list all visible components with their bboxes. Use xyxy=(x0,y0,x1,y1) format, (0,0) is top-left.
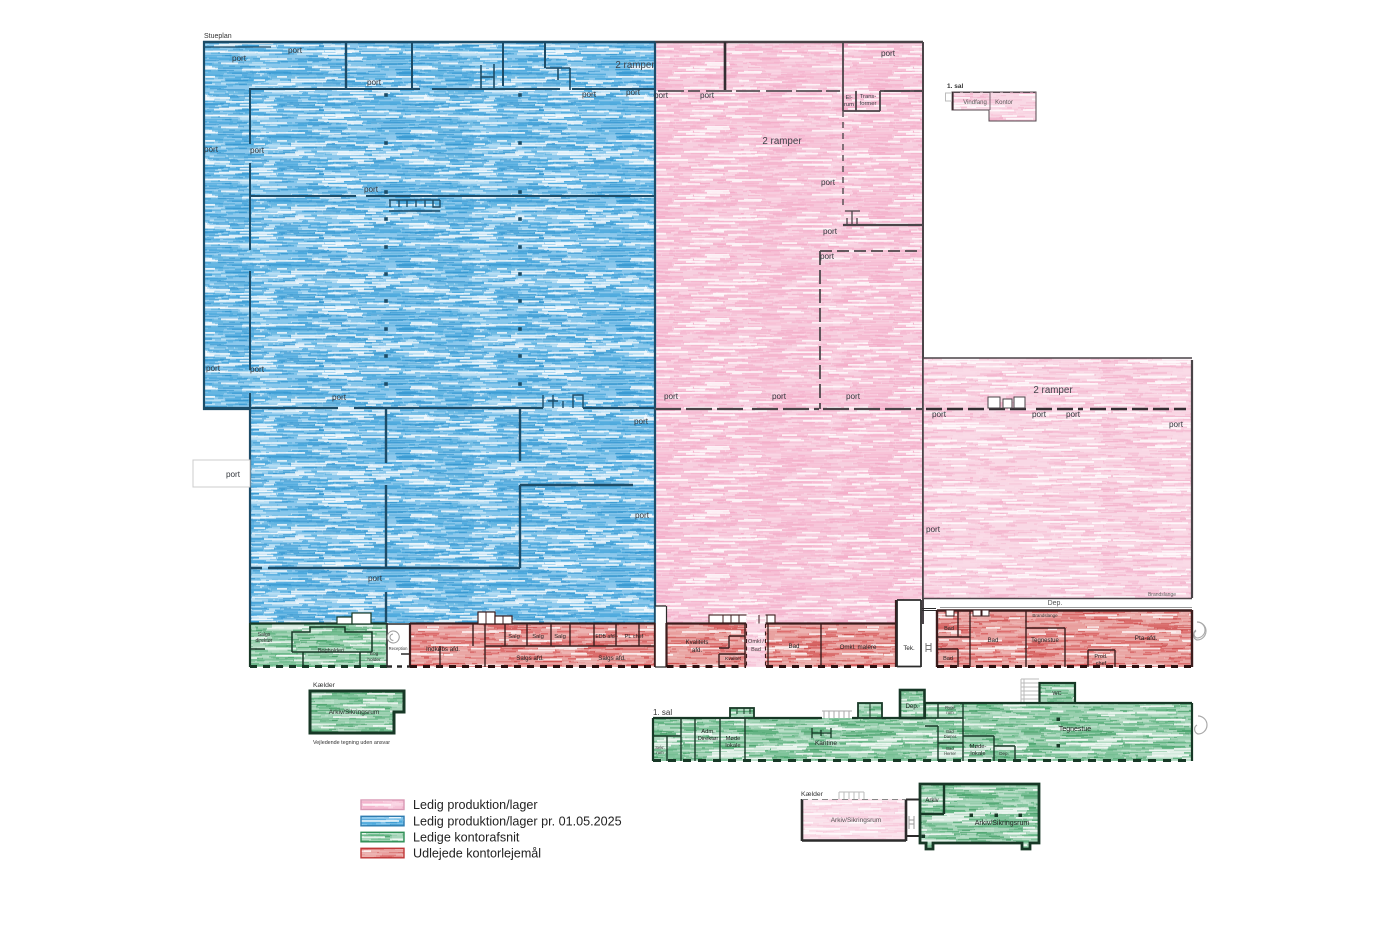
svg-text:Ledige kontorafsnit: Ledige kontorafsnit xyxy=(413,830,520,844)
svg-text:direktør: direktør xyxy=(256,638,273,644)
svg-text:port: port xyxy=(772,392,787,401)
svg-text:WC: WC xyxy=(1052,691,1061,697)
svg-text:rum: rum xyxy=(844,102,854,108)
svg-text:holder: holder xyxy=(367,657,381,663)
svg-text:Omkl. malere: Omkl. malere xyxy=(840,644,877,651)
svg-text:port: port xyxy=(332,393,347,402)
svg-text:Adm.: Adm. xyxy=(701,729,715,735)
svg-text:port: port xyxy=(250,146,265,155)
svg-text:Kantine: Kantine xyxy=(815,740,837,747)
svg-text:Bog: Bog xyxy=(370,651,379,657)
svg-text:Bad: Bad xyxy=(943,656,953,662)
svg-text:Salg: Salg xyxy=(554,634,566,640)
svg-text:Dep.: Dep. xyxy=(999,751,1009,756)
svg-text:port: port xyxy=(368,574,383,583)
svg-text:Arkiv/Sikringsrum: Arkiv/Sikringsrum xyxy=(975,820,1030,827)
svg-text:Direktør: Direktør xyxy=(698,736,719,742)
svg-text:port: port xyxy=(204,145,219,154)
svg-text:Brandslange: Brandslange xyxy=(1148,592,1176,598)
svg-text:lokale: lokale xyxy=(970,751,985,757)
svg-text:Arkiv/Sikringsrum: Arkiv/Sikringsrum xyxy=(329,709,380,716)
svg-text:2 ramper: 2 ramper xyxy=(762,136,802,147)
svg-text:Dep.: Dep. xyxy=(905,703,918,710)
svg-text:port: port xyxy=(364,185,379,194)
svg-text:rum: rum xyxy=(946,710,954,715)
svg-text:lokale: lokale xyxy=(725,743,740,749)
svg-text:Ledig produktion/lager pr. 01.: Ledig produktion/lager pr. 01.05.2025 xyxy=(413,814,622,828)
svg-text:Salg: Salg xyxy=(532,634,544,640)
svg-text:Herrer: Herrer xyxy=(944,751,956,756)
svg-text:Kælder: Kælder xyxy=(313,682,336,689)
svg-text:port: port xyxy=(820,252,835,261)
svg-text:Kontor: Kontor xyxy=(995,100,1013,106)
svg-text:port: port xyxy=(206,364,221,373)
svg-text:Damer: Damer xyxy=(944,734,957,739)
svg-text:Omkl /: Omkl / xyxy=(748,639,764,645)
svg-text:Møde-: Møde- xyxy=(970,744,987,750)
svg-text:port: port xyxy=(226,470,241,479)
svg-text:Tek.: Tek. xyxy=(903,645,915,652)
svg-text:El-: El- xyxy=(845,95,852,101)
svg-text:Bad: Bad xyxy=(751,647,761,653)
svg-text:Kvalitets: Kvalitets xyxy=(686,640,709,646)
svg-text:port: port xyxy=(582,90,597,99)
svg-text:Stueplan: Stueplan xyxy=(204,33,232,40)
svg-text:port: port xyxy=(288,46,303,55)
svg-text:Kvalitet: Kvalitet xyxy=(725,656,741,662)
svg-text:port: port xyxy=(250,365,265,374)
svg-text:port: port xyxy=(654,91,669,100)
svg-text:2 ramper: 2 ramper xyxy=(615,60,655,71)
svg-text:Arkiv/Sikringsrum: Arkiv/Sikringsrum xyxy=(831,817,882,824)
svg-text:Arkiv: Arkiv xyxy=(925,798,938,804)
svg-text:PL chef: PL chef xyxy=(625,634,644,640)
svg-text:Ledig produktion/lager: Ledig produktion/lager xyxy=(413,798,538,812)
svg-text:port: port xyxy=(634,417,649,426)
svg-text:Tegnestue: Tegnestue xyxy=(1031,638,1059,644)
svg-text:port: port xyxy=(926,525,941,534)
svg-text:Brandslange: Brandslange xyxy=(1032,613,1058,618)
svg-text:Tegnestue: Tegnestue xyxy=(1059,726,1091,733)
svg-text:1. sal: 1. sal xyxy=(947,83,963,90)
svg-text:port: port xyxy=(626,88,641,97)
svg-text:Vindfang: Vindfang xyxy=(963,100,987,106)
svg-text:port: port xyxy=(821,178,836,187)
svg-text:Vejledende tegning uden ansvar: Vejledende tegning uden ansvar xyxy=(313,740,390,746)
svg-text:rum: rum xyxy=(656,750,664,755)
svg-text:Bad: Bad xyxy=(944,626,954,632)
svg-text:Kælder: Kælder xyxy=(801,791,824,798)
svg-text:port: port xyxy=(664,392,679,401)
svg-text:port: port xyxy=(932,410,947,419)
svg-text:former: former xyxy=(860,101,877,107)
svg-text:1. sal: 1. sal xyxy=(653,708,672,717)
svg-text:Salg: Salg xyxy=(508,634,520,640)
svg-text:chef: chef xyxy=(1096,661,1107,667)
svg-text:port: port xyxy=(232,54,247,63)
svg-text:port: port xyxy=(635,511,650,520)
svg-text:port: port xyxy=(1032,410,1047,419)
svg-text:Bogholderi: Bogholderi xyxy=(318,648,344,654)
svg-text:EDB afd: EDB afd xyxy=(595,634,614,640)
svg-text:port: port xyxy=(846,392,861,401)
svg-text:Trans-: Trans- xyxy=(860,94,877,100)
svg-text:Udlejede kontorlejemål: Udlejede kontorlejemål xyxy=(413,846,541,860)
svg-text:port: port xyxy=(367,78,382,87)
svg-text:port: port xyxy=(881,49,896,58)
svg-text:port: port xyxy=(823,227,838,236)
svg-text:2 ramper: 2 ramper xyxy=(1033,385,1073,396)
svg-text:Indkøbs afd.: Indkøbs afd. xyxy=(426,646,460,653)
svg-text:port: port xyxy=(1169,420,1184,429)
svg-text:Reception: Reception xyxy=(389,646,409,651)
svg-text:Bad: Bad xyxy=(788,643,800,650)
svg-text:Salgs afd.: Salgs afd. xyxy=(516,655,544,662)
svg-text:Møde: Møde xyxy=(726,736,741,742)
svg-text:afd.: afd. xyxy=(692,648,702,654)
svg-text:port: port xyxy=(700,91,715,100)
svg-text:Bad: Bad xyxy=(988,638,999,644)
svg-text:Dep.: Dep. xyxy=(1048,600,1063,607)
svg-text:Prod.: Prod. xyxy=(1094,654,1108,660)
svg-text:port: port xyxy=(1066,410,1081,419)
svg-text:Pta-afd.: Pta-afd. xyxy=(1135,635,1158,642)
svg-text:Salgs afd.: Salgs afd. xyxy=(598,655,626,662)
